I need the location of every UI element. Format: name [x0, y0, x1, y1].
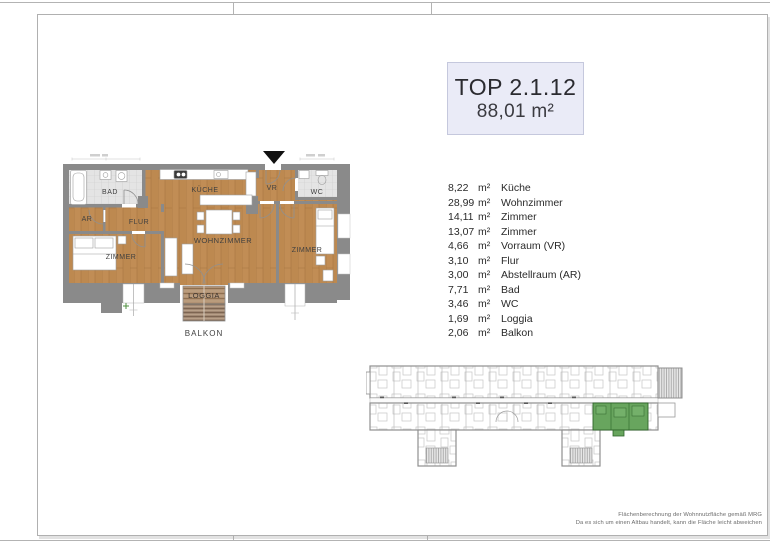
room-list-row: 1,69m²Loggia [448, 312, 623, 327]
room-area: 3,10 [448, 254, 478, 269]
room-name: Zimmer [501, 225, 623, 240]
room-area: 3,46 [448, 297, 478, 312]
room-area: 14,11 [448, 210, 478, 225]
entrance-marker-icon [263, 151, 285, 164]
room-name: Flur [501, 254, 623, 269]
top-tick-1 [233, 2, 234, 14]
room-area: 3,00 [448, 268, 478, 283]
room-list-row: 3,00m²Abstellraum (AR) [448, 268, 623, 283]
room-list-row: 3,46m²WC [448, 297, 623, 312]
room-name: Küche [501, 181, 623, 196]
room-area: 28,99 [448, 196, 478, 211]
keyplan-corridor [370, 398, 658, 403]
room-list-row: 3,10m²Flur [448, 254, 623, 269]
room-list-row: 8,22m²Küche [448, 181, 623, 196]
room-label-zimmer-left: ZIMMER [106, 254, 137, 261]
room-area: 13,07 [448, 225, 478, 240]
plant-marker [123, 303, 129, 309]
room-label-loggia: LOGGIA [188, 291, 220, 300]
room-unit: m² [478, 283, 501, 298]
room-list-row: 14,11m²Zimmer [448, 210, 623, 225]
highlighted-unit [593, 403, 648, 436]
highlighted-unit-balcony [613, 430, 624, 436]
bottom-rule [0, 540, 770, 541]
top-rule [0, 2, 770, 3]
room-unit: m² [478, 297, 501, 312]
room-label-vr: VR [267, 185, 278, 192]
room-area: 2,06 [448, 326, 478, 341]
room-name: Bad [501, 283, 623, 298]
room-name: Abstellraum (AR) [501, 268, 623, 283]
room-unit: m² [478, 312, 501, 327]
room-unit: m² [478, 225, 501, 240]
apartment-total-area: 88,01 m² [477, 100, 554, 124]
keyplan-stair-block [658, 368, 682, 398]
disclaimer-line-1: Flächenberechnung der Wohnnutzfläche gem… [480, 512, 762, 520]
room-unit: m² [478, 210, 501, 225]
room-label-wohnzimmer: WOHNZIMMER [194, 236, 252, 245]
room-name: Wohnzimmer [501, 196, 623, 211]
room-list-row: 4,66m²Vorraum (VR) [448, 239, 623, 254]
room-unit: m² [478, 181, 501, 196]
room-unit: m² [478, 196, 501, 211]
room-area: 7,71 [448, 283, 478, 298]
dimension-marks [72, 154, 334, 161]
room-name: Vorraum (VR) [501, 239, 623, 254]
room-area: 8,22 [448, 181, 478, 196]
room-label-balkon: BALKON [185, 329, 223, 338]
room-label-zimmer-right: ZIMMER [292, 247, 323, 254]
apartment-title: TOP 2.1.12 [455, 74, 577, 100]
room-list-row: 28,99m²Wohnzimmer [448, 196, 623, 211]
room-list-row: 2,06m²Balkon [448, 326, 623, 341]
room-label-bad: BAD [102, 189, 118, 196]
room-name: WC [501, 297, 623, 312]
room-unit: m² [478, 239, 501, 254]
room-unit: m² [478, 254, 501, 269]
disclaimer: Flächenberechnung der Wohnnutzfläche gem… [480, 512, 762, 527]
room-area: 1,69 [448, 312, 478, 327]
room-label-ar: AR [82, 216, 93, 223]
room-area: 4,66 [448, 239, 478, 254]
room-name: Balkon [501, 326, 623, 341]
plan-sheet-page: { "sheet": { "title_block": { "title": "… [0, 0, 770, 545]
room-label-kueche: KÜCHE [191, 186, 218, 194]
building-key-plan [366, 358, 690, 472]
room-name: Loggia [501, 312, 623, 327]
title-block: TOP 2.1.12 88,01 m² [447, 62, 584, 135]
room-name: Zimmer [501, 210, 623, 225]
room-area-list: 8,22m²Küche 28,99m²Wohnzimmer 14,11m²Zim… [448, 181, 623, 341]
room-label-wc: WC [311, 189, 324, 196]
room-label-flur: FLUR [129, 219, 149, 226]
room-unit: m² [478, 268, 501, 283]
room-list-row: 7,71m²Bad [448, 283, 623, 298]
top-tick-2 [431, 2, 432, 14]
room-unit: m² [478, 326, 501, 341]
disclaimer-line-2: Da es sich um einen Altbau handelt, kann… [480, 520, 762, 528]
floor-plan: BAD KÜCHE VR WC AR FLUR ZIMMER WOHNZIMME… [60, 148, 362, 344]
room-list-row: 13,07m²Zimmer [448, 225, 623, 240]
